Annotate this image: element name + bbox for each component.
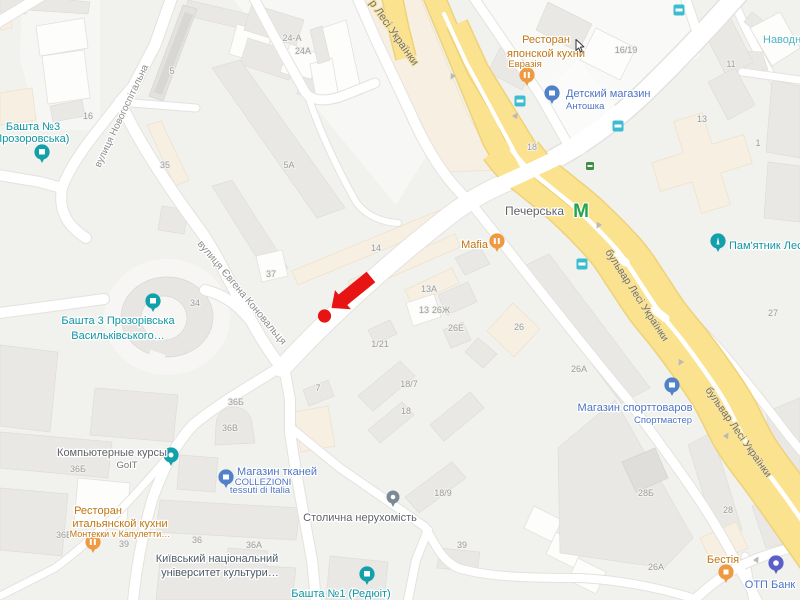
svg-text:35: 35 <box>160 160 170 170</box>
svg-text:Ресторан: Ресторан <box>522 34 570 46</box>
svg-text:27: 27 <box>768 308 778 318</box>
svg-text:26: 26 <box>514 322 524 332</box>
svg-text:Башта №3: Башта №3 <box>6 121 60 133</box>
svg-text:18/7: 18/7 <box>400 379 418 389</box>
svg-text:Бестія: Бестія <box>707 554 739 566</box>
svg-text:Евразія: Евразія <box>508 59 541 70</box>
svg-text:13А: 13А <box>421 284 437 294</box>
svg-text:28: 28 <box>723 505 733 515</box>
svg-text:36: 36 <box>192 535 202 545</box>
svg-text:Наводни: Наводни <box>763 34 800 46</box>
svg-text:Печерська: Печерська <box>505 204 564 218</box>
svg-text:18: 18 <box>401 406 411 416</box>
svg-text:GoIT: GoIT <box>116 460 137 471</box>
svg-text:13: 13 <box>419 305 429 315</box>
svg-text:Васильківського…: Васильківського… <box>71 330 164 342</box>
svg-text:університет культури…: університет культури… <box>161 567 279 579</box>
svg-text:Київський національний: Київський національний <box>156 553 278 565</box>
svg-text:Ресторан: Ресторан <box>74 505 122 517</box>
svg-text:Магазин спорттоваров: Магазин спорттоваров <box>578 402 693 414</box>
svg-text:18: 18 <box>527 142 537 152</box>
svg-text:1: 1 <box>755 138 760 148</box>
svg-text:18/9: 18/9 <box>434 488 452 498</box>
svg-text:13: 13 <box>697 114 707 124</box>
svg-text:Антошка: Антошка <box>566 101 605 112</box>
svg-text:36В: 36В <box>222 423 238 433</box>
svg-text:14: 14 <box>371 243 381 253</box>
svg-text:(Прозоровська): (Прозоровська) <box>0 133 69 145</box>
svg-text:Башта №1 (Редюіт): Башта №1 (Редюіт) <box>291 588 390 600</box>
svg-text:37: 37 <box>266 269 276 279</box>
svg-text:39: 39 <box>457 540 467 550</box>
svg-text:36А: 36А <box>246 540 262 550</box>
svg-text:11: 11 <box>726 59 735 69</box>
svg-text:34: 34 <box>190 298 200 308</box>
svg-text:Детский магазин: Детский магазин <box>566 88 650 100</box>
svg-text:26Ж: 26Ж <box>432 305 451 315</box>
svg-text:26А: 26А <box>648 562 664 572</box>
svg-text:ОТП Банк: ОТП Банк <box>745 579 796 591</box>
svg-text:5: 5 <box>169 66 174 76</box>
svg-text:Столична нерухомість: Столична нерухомість <box>303 512 417 524</box>
svg-text:М: М <box>573 201 589 222</box>
svg-text:Пам'ятник Лесі Ук: Пам'ятник Лесі Ук <box>729 240 800 252</box>
svg-text:1/21: 1/21 <box>371 339 389 349</box>
svg-text:39: 39 <box>119 539 129 549</box>
svg-text:24А: 24А <box>295 46 311 56</box>
svg-text:28Б: 28Б <box>638 488 654 498</box>
svg-text:24-А: 24-А <box>282 33 301 43</box>
svg-text:Монтекки v Капулетти…: Монтекки v Капулетти… <box>70 529 171 539</box>
svg-text:Башта 3 Прозорівська: Башта 3 Прозорівська <box>61 315 175 327</box>
svg-text:7: 7 <box>315 383 320 393</box>
svg-text:Mafia: Mafia <box>461 239 489 251</box>
svg-text:Компьютерные курсы: Компьютерные курсы <box>57 447 167 459</box>
svg-text:36Б: 36Б <box>228 397 244 407</box>
svg-text:16/19: 16/19 <box>615 45 638 55</box>
svg-text:Спортмастер: Спортмастер <box>634 415 692 426</box>
svg-text:5А: 5А <box>283 160 294 170</box>
svg-text:tessuti di Italia: tessuti di Italia <box>230 485 291 496</box>
svg-text:16: 16 <box>83 111 93 121</box>
svg-text:26А: 26А <box>571 364 587 374</box>
svg-text:26Е: 26Е <box>448 323 464 333</box>
svg-text:36Б: 36Б <box>70 464 86 474</box>
